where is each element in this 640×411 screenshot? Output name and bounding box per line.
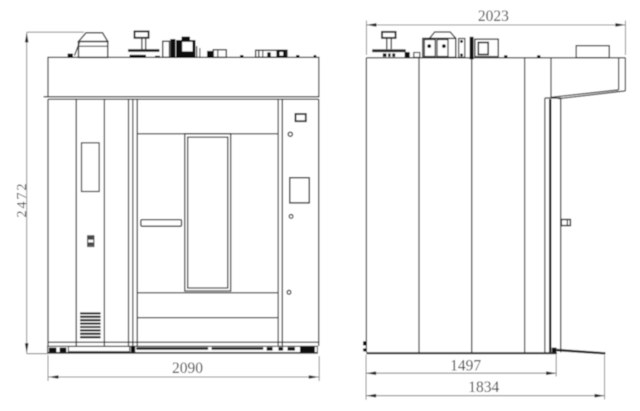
- svg-text:1497: 1497: [450, 357, 481, 374]
- svg-text:2090: 2090: [172, 360, 203, 377]
- svg-text:2023: 2023: [478, 8, 509, 25]
- svg-text:1834: 1834: [468, 379, 499, 396]
- svg-text:2472: 2472: [15, 182, 30, 218]
